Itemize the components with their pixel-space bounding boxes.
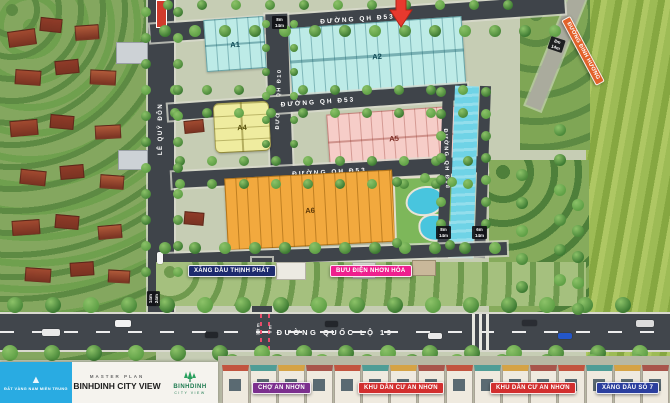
- tree: [262, 116, 270, 124]
- tree: [572, 225, 584, 237]
- tree: [45, 297, 61, 313]
- tree: [173, 267, 183, 277]
- tree: [436, 131, 446, 141]
- frontage-building: [412, 260, 436, 276]
- tree: [262, 92, 270, 100]
- tree: [279, 242, 291, 254]
- tree: [392, 238, 402, 248]
- vehicle: [428, 333, 442, 339]
- tree: [159, 297, 175, 313]
- tree: [265, 0, 275, 10]
- tree: [435, 0, 445, 10]
- post-office-label: BƯU ĐIỆN NHƠN HÒA: [336, 268, 406, 274]
- house: [15, 69, 42, 86]
- tree: [516, 225, 528, 237]
- tree: [426, 108, 436, 118]
- gas-station-building: [276, 262, 306, 280]
- house: [54, 214, 79, 230]
- tree: [271, 179, 281, 189]
- vehicle: [636, 320, 654, 327]
- house: [59, 164, 84, 180]
- tree: [554, 214, 566, 226]
- shop-window: [341, 379, 353, 391]
- block-a2-label: A2: [372, 51, 382, 61]
- vehicle: [205, 332, 218, 338]
- master-plan-label: MASTER PLAN: [90, 374, 145, 379]
- tree: [615, 297, 631, 313]
- tree: [271, 156, 281, 166]
- tree: [333, 0, 343, 10]
- tree: [463, 156, 473, 166]
- tree: [202, 85, 212, 95]
- house: [19, 169, 46, 187]
- tree: [539, 297, 555, 313]
- canal-right-measure-sign: 6m 14m: [472, 226, 487, 239]
- tree: [175, 179, 185, 189]
- tree: [207, 156, 217, 166]
- gas-station-7-label: XĂNG DẦU SỐ 7: [602, 385, 653, 391]
- tree: [141, 189, 151, 199]
- block-a6-label: A6: [305, 205, 315, 214]
- market-badge: CHỢ AN NHƠN: [252, 382, 311, 394]
- house: [70, 261, 95, 277]
- tree: [141, 85, 151, 95]
- tree: [489, 25, 501, 37]
- tree: [436, 109, 446, 119]
- tree: [481, 175, 491, 185]
- tree: [189, 242, 201, 254]
- tree: [249, 242, 261, 254]
- house: [95, 124, 122, 139]
- tree: [273, 297, 289, 313]
- tree: [367, 179, 377, 189]
- tree: [516, 253, 528, 265]
- tree: [330, 85, 340, 95]
- residential-right-badge: KHU DÂN CƯ AN NHƠN: [490, 382, 576, 394]
- tree: [262, 20, 270, 28]
- tree: [335, 179, 345, 189]
- tree: [2, 345, 18, 361]
- tree: [489, 242, 501, 254]
- tree: [481, 153, 491, 163]
- tree: [426, 85, 436, 95]
- tree: [234, 108, 244, 118]
- tree: [170, 345, 186, 361]
- tree: [173, 137, 183, 147]
- tree: [249, 25, 261, 37]
- tree: [330, 108, 340, 118]
- tree: [425, 297, 441, 313]
- tree: [235, 297, 251, 313]
- tree: [503, 0, 513, 10]
- tree: [447, 177, 457, 187]
- house: [183, 119, 204, 134]
- house: [97, 224, 122, 240]
- tree: [516, 197, 528, 209]
- canal-left-measure-sign: 8m 14m: [436, 226, 451, 239]
- vehicle: [325, 321, 338, 327]
- tree: [394, 108, 404, 118]
- tree: [554, 124, 566, 136]
- tree: [349, 297, 365, 313]
- tree: [429, 242, 441, 254]
- trees-logo-icon: [183, 371, 197, 383]
- tree: [436, 175, 446, 185]
- house: [49, 114, 74, 130]
- tree: [459, 25, 471, 37]
- tree: [83, 297, 99, 313]
- block-a4-label: A4: [237, 122, 247, 131]
- tree: [173, 33, 183, 43]
- tree: [141, 137, 151, 147]
- vehicle: [115, 320, 131, 327]
- tree: [572, 251, 584, 263]
- vehicle: [522, 320, 537, 326]
- tree: [303, 179, 313, 189]
- location-arrow-icon: [386, 0, 416, 28]
- shop-unit: [334, 365, 361, 403]
- vehicle: [558, 333, 572, 339]
- house: [90, 69, 117, 85]
- gas-thinh-phat-label: XĂNG DẦU THỊNH PHÁT: [194, 268, 270, 274]
- tree: [572, 277, 584, 289]
- tree: [290, 20, 298, 28]
- title-block: MASTER PLAN BINHDINH CITY VIEW: [72, 362, 162, 403]
- tree: [458, 85, 468, 95]
- tree: [290, 92, 298, 100]
- tree: [141, 111, 151, 121]
- residential-left-label: KHU DÂN CƯ AN NHƠN: [364, 385, 438, 391]
- tree: [399, 156, 409, 166]
- tree: [469, 0, 479, 10]
- tree: [420, 173, 430, 183]
- tree: [299, 0, 309, 10]
- block-a5-label: A5: [389, 133, 399, 143]
- tree: [290, 44, 298, 52]
- tree: [481, 197, 491, 207]
- tree: [163, 0, 173, 10]
- tree: [481, 131, 491, 141]
- tree: [554, 184, 566, 196]
- tree: [501, 297, 517, 313]
- vehicle: [42, 329, 60, 336]
- tree: [262, 44, 270, 52]
- right-logo-name: BINHDINH: [173, 384, 206, 390]
- tree: [458, 108, 468, 118]
- tree: [141, 163, 151, 173]
- tree: [141, 59, 151, 69]
- le-quy-don-measure-sign: 14m 24m: [147, 291, 160, 306]
- tree: [298, 85, 308, 95]
- tree: [554, 274, 566, 286]
- tree: [159, 242, 171, 254]
- ql19-width-label: 30m: [256, 314, 261, 344]
- tree: [189, 25, 201, 37]
- footer-brand-bar: ▲ ĐẤT VÀNG NAM MIỀN TRUNG MASTER PLAN BI…: [0, 362, 218, 403]
- house: [25, 267, 52, 283]
- tree: [459, 242, 471, 254]
- tree: [231, 0, 241, 10]
- tree: [7, 297, 23, 313]
- tree: [516, 281, 528, 293]
- tree: [298, 108, 308, 118]
- right-logo-sub: CITY VIEW: [174, 391, 205, 395]
- tree: [197, 0, 207, 10]
- tree: [159, 25, 171, 37]
- house: [183, 211, 204, 226]
- shop-unit: [446, 365, 473, 403]
- tree: [463, 179, 473, 189]
- tree: [362, 108, 372, 118]
- tree: [173, 241, 183, 251]
- shop-window: [229, 379, 241, 391]
- tree: [519, 25, 531, 37]
- residential-right-label: KHU DÂN CƯ AN NHƠN: [496, 385, 570, 391]
- tree: [141, 215, 151, 225]
- tree: [141, 33, 151, 43]
- tree: [141, 267, 151, 277]
- tree: [554, 154, 566, 166]
- shop-window: [453, 379, 465, 391]
- tree: [219, 242, 231, 254]
- market-label: CHỢ AN NHƠN: [258, 385, 305, 391]
- tree: [309, 242, 321, 254]
- left-logo-text: ĐẤT VÀNG NAM MIỀN TRUNG: [4, 387, 68, 391]
- tree: [429, 25, 441, 37]
- block-a1-label: A1: [230, 39, 240, 49]
- gas-thinh-phat-badge: XĂNG DẦU THỊNH PHÁT: [188, 265, 276, 277]
- house: [75, 24, 100, 41]
- tree: [44, 345, 60, 361]
- tree: [173, 111, 183, 121]
- tree: [239, 156, 249, 166]
- gas-station-7-badge: XĂNG DẦU SỐ 7: [596, 382, 659, 394]
- tree: [436, 153, 446, 163]
- shop-unit: [222, 365, 249, 403]
- residential-left-badge: KHU DÂN CƯ AN NHƠN: [358, 382, 444, 394]
- block-a1: A1: [203, 16, 266, 72]
- mountain-logo-icon: ▲: [31, 375, 42, 386]
- tree: [481, 87, 491, 97]
- house: [39, 17, 62, 33]
- tree: [173, 59, 183, 69]
- tree: [86, 345, 102, 361]
- tree: [394, 85, 404, 95]
- tree: [367, 156, 377, 166]
- tree: [262, 140, 270, 148]
- tree: [219, 25, 231, 37]
- house: [9, 119, 38, 137]
- house: [54, 59, 79, 75]
- tree: [311, 297, 327, 313]
- tree: [290, 68, 298, 76]
- qh-d10-measure-sign: 8m 14m: [272, 16, 287, 29]
- tree: [367, 0, 377, 10]
- house: [108, 269, 131, 283]
- tree: [141, 241, 151, 251]
- tree: [335, 156, 345, 166]
- tree: [173, 215, 183, 225]
- tree: [572, 199, 584, 211]
- vehicle: [157, 252, 163, 264]
- tree: [173, 7, 183, 17]
- tree: [239, 179, 249, 189]
- tree: [369, 25, 381, 37]
- tree: [445, 240, 455, 250]
- right-logo: BINHDINH CITY VIEW: [162, 362, 218, 403]
- road-le-quy-don-label: LÊ QUÝ ĐÔN: [158, 89, 164, 169]
- tree: [141, 7, 151, 17]
- tree: [369, 242, 381, 254]
- house: [12, 219, 41, 236]
- tree: [387, 297, 403, 313]
- tree: [436, 197, 446, 207]
- tree: [339, 25, 351, 37]
- tree: [554, 244, 566, 256]
- house: [100, 174, 125, 190]
- tree: [234, 85, 244, 95]
- tree: [290, 116, 298, 124]
- ql19-lane-label: 6m: [268, 314, 273, 344]
- tree: [290, 140, 298, 148]
- tree: [173, 163, 183, 173]
- post-office-badge: BƯU ĐIỆN NHƠN HÒA: [330, 265, 412, 277]
- tree: [197, 297, 213, 313]
- tree: [481, 109, 491, 119]
- left-logo: ▲ ĐẤT VÀNG NAM MIỀN TRUNG: [0, 362, 72, 403]
- tree: [207, 179, 217, 189]
- tree: [392, 177, 402, 187]
- project-name: BINHDINH CITY VIEW: [73, 381, 160, 391]
- tree: [262, 68, 270, 76]
- tree: [339, 242, 351, 254]
- tree: [309, 25, 321, 37]
- tree: [303, 156, 313, 166]
- tree: [128, 345, 144, 361]
- tree: [463, 297, 479, 313]
- tree: [202, 108, 212, 118]
- tree: [173, 85, 183, 95]
- tree: [572, 303, 584, 315]
- tree: [173, 189, 183, 199]
- tree: [362, 85, 372, 95]
- tree: [121, 297, 137, 313]
- tree: [516, 169, 528, 181]
- master-plan-map: ĐƯỜNG ĐINH HƯƠNG 8m 14m LÊ QUÝ ĐÔN 14m 2…: [0, 0, 670, 403]
- tree: [436, 87, 446, 97]
- road-quoc-lo-19: ĐƯỜNG QUỐC LỘ 19: [0, 312, 670, 352]
- shop-window: [313, 379, 325, 391]
